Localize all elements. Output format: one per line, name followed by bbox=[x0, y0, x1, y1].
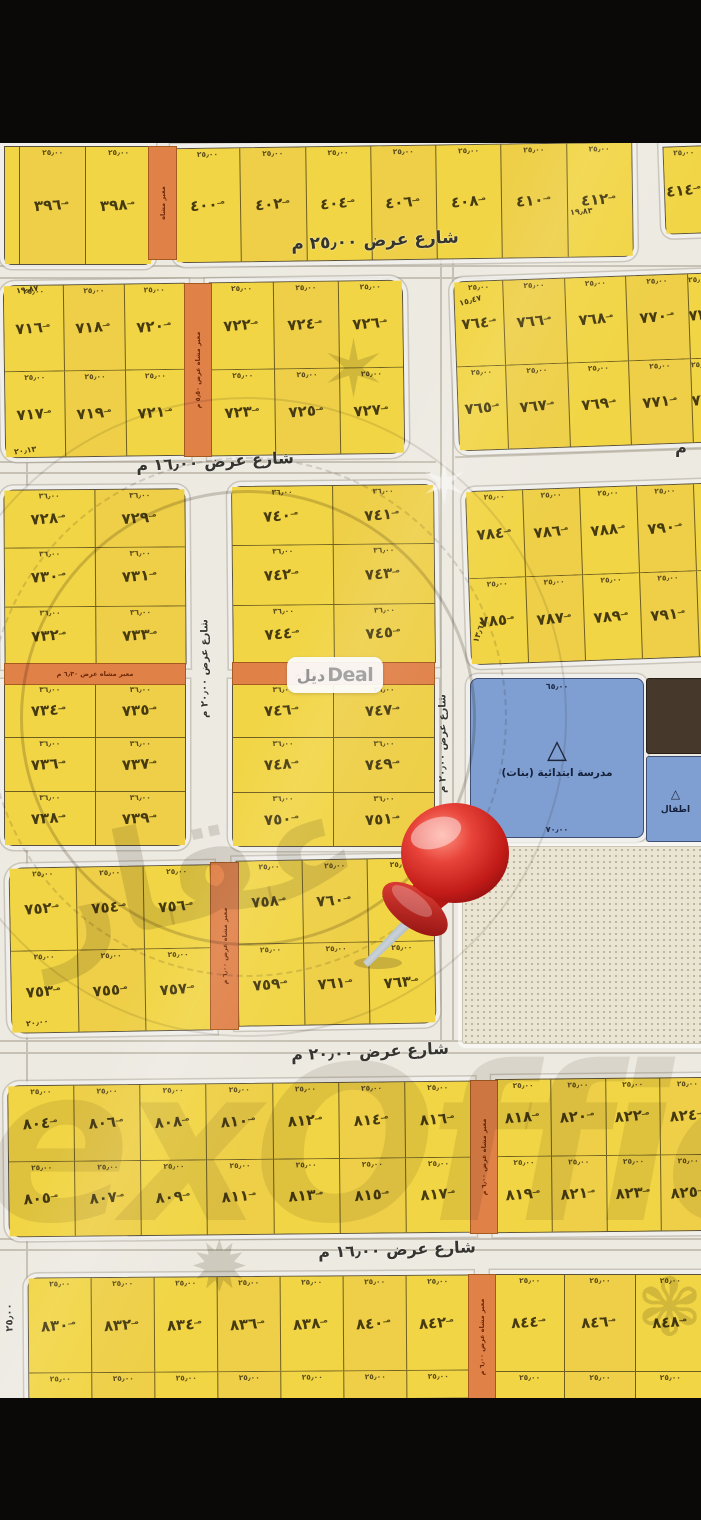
plot-820: ٢٥٫٠٠٨٢٠ bbox=[550, 1079, 606, 1155]
plot-dimension: ٢٥٫٠٠ bbox=[688, 275, 701, 285]
plot-number: ٧٥٤ bbox=[91, 899, 129, 917]
plot-dimension: ٢٥٫٠٠ bbox=[660, 1079, 701, 1089]
plot-row: ٣٦٫٠٠٧٤٤٣٦٫٠٠٧٤٥ bbox=[233, 603, 435, 664]
plot-725: ٢٥٫٠٠٧٢٥ bbox=[274, 368, 340, 454]
plot-block-t1: ٢٥٫٠٠٣٩٦٢٥٫٠٠٣٩٨ bbox=[4, 146, 152, 265]
plot-dimension: ٢٥٫٠٠ bbox=[552, 1157, 606, 1167]
plot-number: ٨٢٣ bbox=[615, 1184, 653, 1202]
plot-row: ٢٥٫٠٠٣٩٦٢٥٫٠٠٣٩٨ bbox=[5, 147, 151, 264]
plot-dimension: ٢٥٫٠٠ bbox=[583, 574, 639, 585]
app-logo-latin: Deal bbox=[327, 664, 373, 686]
plot-block-er: ٢٥٫٠٠٨١٨٢٥٫٠٠٨٢٠٢٥٫٠٠٨٢٢٢٥٫٠٠٨٢٤٢٥٫٠٠٨١٩… bbox=[495, 1077, 701, 1233]
plot-dimension: ٢٥٫٠٠ bbox=[5, 372, 64, 382]
plot-821: ٢٥٫٠٠٨٢١ bbox=[551, 1156, 607, 1232]
plot-partial: ٢٥٫٠٠ bbox=[217, 1372, 280, 1399]
plot-400: ٢٥٫٠٠٤٠٠ bbox=[175, 148, 241, 262]
plot-738: ٣٦٫٠٠٧٣٨ bbox=[5, 792, 95, 845]
passage-label: معبر مشاه عرض ٥٫٥٠ م bbox=[194, 332, 202, 409]
plot-dimension: ٢٥٫٠٠ bbox=[275, 369, 338, 379]
plot-733: ٣٦٫٠٠٧٣٣ bbox=[95, 606, 186, 664]
plot-number: ٨١٣ bbox=[287, 1187, 325, 1205]
plot-dimension: ٢٥٫٠٠ bbox=[664, 147, 701, 157]
passage-label: معبر مشاه عرض ٦٫٣٠ م bbox=[57, 670, 134, 678]
plot-number: ٧٣٣ bbox=[122, 626, 160, 644]
plot-dimension: ٢٥٫٠٠ bbox=[457, 366, 506, 377]
plot-block-b2: ٢٥٫٠٠٧٦٤٢٥٫٠٠٧٦٦٢٥٫٠٠٧٦٨٢٥٫٠٠٧٧٠٢٥٫٠٠٧٧٢… bbox=[453, 273, 701, 452]
plot-number: ٤٠٨ bbox=[450, 193, 488, 211]
plot-number: ٧٤٣ bbox=[365, 565, 403, 583]
plot-row: ٣٦٫٠٠٧٢٨٣٦٫٠٠٧٢٩ bbox=[4, 489, 184, 548]
plot-number: ٨٢٢ bbox=[614, 1107, 652, 1125]
plot-dimension: ٢٥٫٠٠ bbox=[64, 286, 123, 296]
plot-number: ٨٤٠ bbox=[356, 1314, 394, 1332]
plot-766: ٢٥٫٠٠٧٦٦ bbox=[503, 279, 567, 365]
plot-dimension: ٣٦٫٠٠ bbox=[334, 605, 434, 615]
plot-number: ٧٧٢ bbox=[687, 306, 701, 325]
plot-dimension: ٢٥٫٠٠ bbox=[607, 1156, 661, 1166]
plot-dimension: ٣٦٫٠٠ bbox=[5, 739, 95, 748]
plot-block-fl: ٢٥٫٠٠٨٣٠٢٥٫٠٠٨٣٢٢٥٫٠٠٨٣٤٢٥٫٠٠٨٣٦٢٥٫٠٠٨٣٨… bbox=[28, 1274, 471, 1401]
plot-number: ٧٦٥ bbox=[463, 398, 502, 417]
plot-825: ٢٥٫٠٠٨٢٥ bbox=[660, 1154, 701, 1230]
plot-number: ٧١٨ bbox=[75, 318, 113, 336]
plot-dimension: ٢٥٫٠٠ bbox=[580, 487, 636, 498]
app-logo-watermark: ديلDeal bbox=[287, 657, 383, 693]
plot-row: ٢٥٫٠٠٨١٨٢٥٫٠٠٨٢٠٢٥٫٠٠٨٢٢٢٥٫٠٠٨٢٤ bbox=[496, 1078, 701, 1156]
plot-810: ٢٥٫٠٠٨١٠ bbox=[206, 1084, 273, 1159]
plot-730: ٣٦٫٠٠٧٣٠ bbox=[5, 548, 95, 606]
plot-row: ٢٥٫٠٠٨٤٤٢٥٫٠٠٨٤٦٢٥٫٠٠٨٤٨ bbox=[495, 1275, 701, 1371]
plot-dimension: ٣٦٫٠٠ bbox=[334, 545, 434, 555]
plot-row: ٣٦٫٠٠٧٣٦٣٦٫٠٠٧٣٧ bbox=[5, 737, 185, 791]
plot-row: ٢٥٫٠٠٨٠٤٢٥٫٠٠٨٠٦٢٥٫٠٠٨٠٨٢٥٫٠٠٨١٠٢٥٫٠٠٨١٢… bbox=[8, 1082, 471, 1161]
plot-number: ٣٩٦ bbox=[34, 197, 72, 215]
plot-dimension: ٢٥٫٠٠ bbox=[75, 1162, 140, 1172]
plot-number: ٤٠٢ bbox=[254, 195, 292, 213]
plot-number: ٧٣٨ bbox=[31, 810, 69, 828]
plot-844: ٢٥٫٠٠٨٤٤ bbox=[495, 1275, 564, 1371]
plot-789: ٢٥٫٠٠٧٨٩ bbox=[582, 573, 642, 660]
plot-number: ٧٢٩ bbox=[121, 509, 159, 527]
plot-dimension: ٢٥٫٠٠ bbox=[606, 1079, 660, 1089]
school-dim-top: ٦٥٫٠٠ bbox=[471, 682, 643, 691]
pedestrian-passage: معبر مشاه bbox=[148, 146, 177, 260]
plot-dimension: ٢٥٫٠٠ bbox=[626, 275, 687, 286]
plot-756: ٢٥٫٠٠٧٥٦ bbox=[143, 865, 211, 948]
plot-dimension: ٢٥٫٠٠ bbox=[338, 282, 401, 292]
plot-dimension: ٢٥٫٠٠ bbox=[636, 1276, 701, 1285]
plot-396: ٢٥٫٠٠٣٩٦ bbox=[19, 147, 85, 264]
plot-dimension: ٢٥٫٠٠ bbox=[155, 1278, 217, 1287]
plot-dimension: ٣٦٫٠٠ bbox=[96, 607, 186, 617]
plot-number: ٧٦٠ bbox=[316, 892, 354, 910]
street-curb-line bbox=[0, 1238, 701, 1240]
plot-number: ٧٨٩ bbox=[593, 607, 632, 626]
plot-768: ٢٥٫٠٠٧٦٨ bbox=[564, 276, 628, 362]
plot-767: ٢٥٫٠٠٧٦٧ bbox=[505, 363, 569, 449]
plot-number: ٧٤٠ bbox=[263, 507, 301, 525]
plot-number: ٨٢١ bbox=[560, 1185, 598, 1203]
plot-dimension: ٢٥٫٠٠ bbox=[565, 277, 626, 288]
plot-dimension: ٢٥٫٠٠ bbox=[20, 148, 85, 157]
plot-dimension: ٢٥٫٠٠ bbox=[344, 1277, 406, 1286]
street-label-sv2: شارع عرض ٢٠٫٠٠ م bbox=[438, 669, 449, 819]
plot-number: ٧٣٩ bbox=[121, 810, 159, 828]
plot-dimension: ٢٥٫٠٠ bbox=[86, 148, 151, 157]
app-logo-arabic: ديل bbox=[297, 666, 326, 685]
plot-number: ٨٠٥ bbox=[23, 1190, 61, 1208]
plot-dimension: ٢٥٫٠٠ bbox=[526, 576, 582, 587]
plot-735: ٣٦٫٠٠٧٣٥ bbox=[95, 684, 186, 737]
plot-number: ٧٣٤ bbox=[31, 702, 69, 720]
passage-label: معبر مشاه bbox=[159, 186, 167, 220]
plot-number: ٧٧٣ bbox=[690, 391, 701, 410]
plot-block-b1b: ٢٥٫٠٠٧٢٢٢٥٫٠٠٧٢٤٢٥٫٠٠٧٢٦٢٥٫٠٠٧٢٣٢٥٫٠٠٧٢٥… bbox=[209, 280, 405, 457]
bottom-letterbox bbox=[0, 1398, 701, 1520]
plot-number: ٧٣٦ bbox=[31, 756, 69, 774]
plot-dimension: ٢٥٫٠٠ bbox=[495, 1276, 564, 1285]
plot-number: ٧٤٦ bbox=[264, 702, 302, 720]
plot-number: ٨٣٤ bbox=[167, 1316, 205, 1334]
plot-dimension: ٣٦٫٠٠ bbox=[233, 739, 333, 748]
plot-dimension: ٣٦٫٠٠ bbox=[334, 739, 434, 748]
plot-row: ٢٥٫٠٠٨٣٠٢٥٫٠٠٨٣٢٢٥٫٠٠٨٣٤٢٥٫٠٠٨٣٦٢٥٫٠٠٨٣٨… bbox=[29, 1275, 470, 1372]
plot-dimension: ٢٥٫٠٠ bbox=[29, 1279, 91, 1288]
plot-row: ٣٦٫٠٠٧٣٠٣٦٫٠٠٧٣١ bbox=[5, 547, 185, 607]
top-letterbox bbox=[0, 0, 701, 143]
plot-812: ٢٥٫٠٠٨١٢ bbox=[272, 1083, 339, 1158]
plot-dimension: ٢٥٫٠٠ bbox=[273, 1084, 338, 1094]
plot-number: ٧٤٧ bbox=[365, 702, 403, 720]
plot-822: ٢٥٫٠٠٨٢٢ bbox=[605, 1078, 661, 1154]
plot-row: ٣٦٫٠٠٧٤٢٣٦٫٠٠٧٤٣ bbox=[233, 543, 435, 604]
dark-plot bbox=[646, 678, 701, 754]
plot-838: ٢٥٫٠٠٨٣٨ bbox=[280, 1276, 344, 1371]
plot-736: ٣٦٫٠٠٧٣٦ bbox=[5, 738, 95, 791]
plot-772: ٢٥٫٠٠٧٧٢ bbox=[687, 274, 701, 358]
plot-dimension: ٢٥٫٠٠ bbox=[502, 145, 566, 155]
plot-row: ٣٦٫٠٠٧٣٨٣٦٫٠٠٧٣٩ bbox=[5, 791, 185, 845]
plot-dimension: ٣٦٫٠٠ bbox=[5, 549, 95, 559]
plot-number: ٧٨٤ bbox=[476, 525, 515, 544]
plot-dimension: ٢٥٫٠٠ bbox=[454, 282, 503, 293]
plot-dimension: ٢٥٫٠٠ bbox=[340, 368, 403, 378]
plot-block-t3: ٢٥٫٠٠٤١٤ bbox=[662, 145, 701, 234]
plot-number: ٨٠٨ bbox=[154, 1113, 192, 1131]
street-label-sv1: شارع عرض ٢٠٫٠٠ م bbox=[200, 594, 211, 744]
plot-dimension: ٢٥٫٠٠ bbox=[497, 1157, 551, 1167]
plot-number: ٧١٩ bbox=[76, 404, 114, 422]
location-pin bbox=[352, 797, 517, 972]
plot-number: ٨٠٦ bbox=[88, 1114, 126, 1132]
plot-block-d1: ٢٥٫٠٠٧٥٢٢٥٫٠٠٧٥٤٢٥٫٠٠٧٥٦٢٥٫٠٠٧٥٣٢٥٫٠٠٧٥٥… bbox=[9, 864, 214, 1034]
plot-dimension: ٢٥٫٠٠ bbox=[78, 950, 144, 960]
plot-dimension: ٣٦٫٠٠ bbox=[96, 793, 186, 802]
plot-dimension: ٢٥٫٠٠ bbox=[340, 1159, 405, 1169]
plot-dimension: ٢٥٫٠٠ bbox=[640, 572, 696, 583]
plot-dimension: ٣٦٫٠٠ bbox=[4, 491, 94, 501]
plot-dimension: ٢٥٫٠٠ bbox=[145, 949, 211, 959]
plot-dimension: ٢٥٫٠٠ bbox=[568, 362, 629, 373]
plot-dimension: ٢٥٫٠٠ bbox=[496, 1081, 550, 1091]
plot-dimension: ٢٥٫٠٠ bbox=[74, 1086, 139, 1096]
plot-number: ٧٤٩ bbox=[365, 756, 403, 774]
plot-dimension: ٢٥٫٠٠ bbox=[238, 944, 303, 954]
plot-716: ٢٥٫٠٠٧١٦ bbox=[4, 285, 65, 371]
plot-dimension: ٢٥٫٠٠ bbox=[371, 147, 435, 157]
plot-dimension: ٢٥٫٠٠ bbox=[11, 951, 77, 961]
plot-dimension: ٣٦٫٠٠ bbox=[233, 546, 333, 556]
plot-partial: ٢٥٫٠٠ bbox=[343, 1371, 406, 1398]
plot-block-el: ٢٥٫٠٠٨٠٤٢٥٫٠٠٨٠٦٢٥٫٠٠٨٠٨٢٥٫٠٠٨١٠٢٥٫٠٠٨١٢… bbox=[7, 1081, 473, 1238]
plot-row: ٢٥٫٠٠٧١٦٢٥٫٠٠٧١٨٢٥٫٠٠٧٢٠ bbox=[4, 284, 185, 372]
plot-number: ٧٨٨ bbox=[590, 521, 629, 540]
plot-818: ٢٥٫٠٠٨١٨ bbox=[496, 1080, 551, 1156]
plot-731: ٣٦٫٠٠٧٣١ bbox=[94, 548, 185, 606]
plot-814: ٢٥٫٠٠٨١٤ bbox=[338, 1082, 405, 1157]
plot-754: ٢٥٫٠٠٧٥٤ bbox=[76, 866, 144, 949]
plot-number: ٧٢٢ bbox=[223, 317, 261, 335]
plot-815: ٢٥٫٠٠٨١٥ bbox=[339, 1158, 406, 1233]
plot-752: ٢٥٫٠٠٧٥٢ bbox=[10, 868, 77, 951]
plot-number: ٧٦٧ bbox=[519, 396, 558, 415]
plot-number: ٧٣٥ bbox=[121, 702, 159, 720]
plot-number: ٨٤٤ bbox=[511, 1314, 549, 1332]
plot-number: ٧٨٧ bbox=[536, 609, 575, 628]
plot-block-c1a: ٣٦٫٠٠٧٢٨٣٦٫٠٠٧٢٩٣٦٫٠٠٧٣٠٣٦٫٠٠٧٣١٣٦٫٠٠٧٣٢… bbox=[3, 488, 186, 665]
plot-790: ٢٥٫٠٠٧٩٠ bbox=[636, 484, 696, 571]
plot-771: ٢٥٫٠٠٧٧١ bbox=[628, 359, 692, 445]
plot-number: ٧٦٨ bbox=[577, 310, 616, 329]
plot-813: ٢٥٫٠٠٨١٣ bbox=[273, 1158, 340, 1233]
plot-number: ٧٥٩ bbox=[252, 975, 290, 993]
plot-block-c1b: ٣٦٫٠٠٧٣٤٣٦٫٠٠٧٣٥٣٦٫٠٠٧٣٦٣٦٫٠٠٧٣٧٣٦٫٠٠٧٣٨… bbox=[4, 683, 186, 846]
plot-number: ٧٤٤ bbox=[265, 625, 303, 643]
plot-number: ٤١٤ bbox=[666, 181, 701, 200]
plot-row: ٢٥٫٠٠٧٢٣٢٥٫٠٠٧٢٥٢٥٫٠٠٧٢٧ bbox=[211, 366, 404, 455]
plot-block-fr: ٢٥٫٠٠٨٤٤٢٥٫٠٠٨٤٦٢٥٫٠٠٨٤٨٢٥٫٠٠٢٥٫٠٠٢٥٫٠٠ bbox=[494, 1274, 701, 1400]
plot-824: ٢٥٫٠٠٨٢٤ bbox=[659, 1078, 701, 1154]
kindergarten-plot: اطفال bbox=[646, 756, 701, 842]
plot-number: ٨٣٠ bbox=[41, 1317, 79, 1335]
plot-dimension: ٢٥٫٠٠ bbox=[691, 359, 701, 369]
plot-dimension: ٢٥٫٠٠ bbox=[281, 1277, 343, 1286]
plot-dimension: ٣٦٫٠٠ bbox=[95, 490, 185, 500]
plot-number: ٨٤٨ bbox=[651, 1314, 689, 1332]
plot-727: ٢٥٫٠٠٧٢٧ bbox=[339, 367, 405, 453]
plot-808: ٢٥٫٠٠٨٠٨ bbox=[140, 1084, 207, 1159]
pedestrian-passage: معبر مشاه عرض ٦٫٠٠ م bbox=[470, 1080, 498, 1234]
plot-742: ٣٦٫٠٠٧٤٢ bbox=[233, 545, 334, 604]
plot-number: ٧٢٠ bbox=[136, 318, 174, 336]
plot-number: ٨٣٨ bbox=[293, 1315, 331, 1333]
plot-817: ٢٥٫٠٠٨١٧ bbox=[405, 1157, 472, 1232]
pedestrian-passage: معبر مشاه عرض ٥٫٥٠ م bbox=[184, 283, 212, 457]
plot-dimension: ٢٥٫٠٠ bbox=[506, 364, 567, 375]
plot-741: ٣٦٫٠٠٧٤١ bbox=[332, 485, 434, 544]
plot-726: ٢٥٫٠٠٧٢٦ bbox=[337, 281, 403, 367]
plot-number: ٨١٧ bbox=[420, 1186, 458, 1204]
plot-749: ٣٦٫٠٠٧٤٩ bbox=[333, 738, 434, 791]
plot-number: ٧٥٧ bbox=[160, 980, 198, 998]
plot-740: ٣٦٫٠٠٧٤٠ bbox=[232, 486, 333, 545]
pedestrian-passage: معبر مشاه عرض ٦٫٠٠ م bbox=[468, 1274, 496, 1400]
plot-dimension: ٢٥٫٠٠ bbox=[565, 1276, 634, 1285]
plot-row: ٢٥٫٠٠٢٥٫٠٠٢٥٫٠٠٢٥٫٠٠٢٥٫٠٠٢٥٫٠٠٢٥٫٠٠ bbox=[29, 1370, 469, 1401]
plot-834: ٢٥٫٠٠٨٣٤ bbox=[154, 1277, 218, 1372]
plot-729: ٣٦٫٠٠٧٢٩ bbox=[94, 489, 185, 547]
plot-dimension: ٢٥٫٠٠ bbox=[175, 149, 239, 159]
plot-row: ٢٥٫٠٠٧٦٥٢٥٫٠٠٧٦٧٢٥٫٠٠٧٦٩٢٥٫٠٠٧٧١٢٥٫٠٠٧٧٣ bbox=[457, 357, 701, 450]
school-label: مدرسة ابتدائية (بنات) bbox=[501, 767, 612, 779]
plot-number: ٧٥٥ bbox=[93, 981, 131, 999]
plot-number: ٧٣٧ bbox=[121, 756, 159, 774]
plot-partial: ٢٥٫٠٠ bbox=[280, 1372, 343, 1399]
plot-743: ٣٦٫٠٠٧٤٣ bbox=[333, 544, 435, 603]
plot-dimension: ٢٥٫٠٠ bbox=[141, 1161, 206, 1171]
street-label-sleft: ٢٥٫٠٠ bbox=[5, 1270, 16, 1366]
plot-728: ٣٦٫٠٠٧٢٨ bbox=[4, 490, 94, 548]
plot-dimension: ٢٥٫٠٠ bbox=[211, 370, 274, 380]
plot-846: ٢٥٫٠٠٨٤٦ bbox=[564, 1275, 634, 1371]
plot-dimension: ٢٥٫٠٠ bbox=[466, 491, 522, 502]
plot-dimension: ٣٦٫٠٠ bbox=[95, 549, 185, 559]
plot-number: ٧٣٢ bbox=[31, 627, 69, 645]
plot-number: ٧٥٦ bbox=[158, 897, 196, 915]
plot-724: ٢٥٫٠٠٧٢٤ bbox=[273, 282, 339, 368]
plot-partial: ٢٥٫٠٠ bbox=[406, 1371, 469, 1398]
plot-dimension: ٣٦٫٠٠ bbox=[233, 606, 333, 616]
plot-819: ٢٥٫٠٠٨١٩ bbox=[497, 1156, 552, 1232]
plot-412: ٢٥٫٠٠٤١٢ bbox=[566, 143, 633, 257]
plot-number: ٨١٩ bbox=[505, 1185, 543, 1203]
plot-dimension: ٢٥٫٠٠ bbox=[661, 1155, 701, 1165]
plot-732: ٣٦٫٠٠٧٣٢ bbox=[5, 607, 95, 665]
plot-770: ٢٥٫٠٠٧٧٠ bbox=[625, 274, 689, 360]
plot-dimension: ٢٥٫٠٠ bbox=[77, 867, 143, 877]
plot-848: ٢٥٫٠٠٨٤٨ bbox=[635, 1275, 701, 1371]
plot-number: ٣٩٨ bbox=[99, 197, 137, 215]
plot-dimension: ٣٦٫٠٠ bbox=[333, 486, 433, 496]
plot-number: ٧٤٨ bbox=[264, 756, 302, 774]
plot-partial: ٢٥٫٠٠ bbox=[495, 1372, 564, 1399]
plot-number: ٧١٦ bbox=[15, 319, 53, 337]
plot-number: ٧١٧ bbox=[16, 405, 54, 423]
plot-block-b1: ٢٥٫٠٠٧١٦٢٥٫٠٠٧١٨٢٥٫٠٠٧٢٠٢٥٫٠٠٧١٧٢٥٫٠٠٧١٩… bbox=[3, 283, 187, 459]
plot-832: ٢٥٫٠٠٨٣٢ bbox=[91, 1278, 155, 1373]
plot-786: ٢٥٫٠٠٧٨٦ bbox=[522, 488, 582, 575]
plot-number: ٤٠٦ bbox=[385, 193, 423, 211]
street-curb-line bbox=[0, 472, 430, 474]
plot-755: ٢٥٫٠٠٧٥٥ bbox=[77, 949, 145, 1032]
plot-block-c4: ٢٥٫٠٠٧٨٤٢٥٫٠٠٧٨٦٢٥٫٠٠٧٨٨٢٥٫٠٠٧٩٠٢٥٫٠٠٧٨٥… bbox=[465, 483, 701, 665]
plot-partial: ٢٥٫٠٠ bbox=[29, 1373, 91, 1400]
plot-number: ٧٥٣ bbox=[26, 982, 64, 1000]
plot-partial: ٢٥٫٠٠ bbox=[564, 1372, 634, 1399]
pedestrian-passage: معبر مشاه عرض ٦٫٣٠ م bbox=[4, 663, 186, 685]
plot-773: ٢٥٫٠٠٧٧٣ bbox=[690, 358, 701, 442]
plot-number: ٧٨٦ bbox=[533, 523, 572, 542]
plot-number: ٧٦٣ bbox=[383, 973, 421, 991]
plot-number: ٨٢٠ bbox=[559, 1108, 597, 1126]
plot-791: ٢٥٫٠٠٧٩١ bbox=[639, 571, 699, 658]
plot-number: ٨٠٩ bbox=[155, 1188, 193, 1206]
plot-row: ٢٥٫٠٠٨٠٥٢٥٫٠٠٨٠٧٢٥٫٠٠٨٠٩٢٥٫٠٠٨١١٢٥٫٠٠٨١٣… bbox=[9, 1156, 472, 1236]
plot-number: ٧٣٠ bbox=[31, 568, 69, 586]
plot-dimension: ٢٥٫٠٠ bbox=[551, 1080, 605, 1090]
plot-787: ٢٥٫٠٠٧٨٧ bbox=[525, 575, 585, 662]
plot-dimension: ٢٥٫٠٠ bbox=[124, 285, 183, 295]
plot-number: ٧٩١ bbox=[650, 605, 689, 624]
plot-dimension: ٣٦٫٠٠ bbox=[96, 739, 186, 748]
plot-row: ٢٥٫٠٠٨١٩٢٥٫٠٠٨٢١٢٥٫٠٠٨٢٣٢٥٫٠٠٨٢٥ bbox=[497, 1153, 701, 1232]
plot-dimension: ٣٦٫٠٠ bbox=[5, 685, 95, 694]
plot-dimension: ٢٥٫٠٠ bbox=[523, 489, 579, 500]
plot-dimension: ٢٥٫٠٠ bbox=[8, 1087, 73, 1097]
plot-759: ٢٥٫٠٠٧٥٩ bbox=[238, 943, 304, 1026]
plot-830: ٢٥٫٠٠٨٣٠ bbox=[29, 1278, 92, 1373]
plot-dimension: ٣٦٫٠٠ bbox=[5, 793, 95, 802]
plot-718: ٢٥٫٠٠٧١٨ bbox=[63, 285, 125, 371]
plot-dimension: ٢٥٫٠٠ bbox=[274, 1159, 339, 1169]
plot-842: ٢٥٫٠٠٨٤٢ bbox=[406, 1275, 470, 1370]
plot-row: ٢٥٫٠٠٧٨٥٢٥٫٠٠٧٨٧٢٥٫٠٠٧٨٩٢٥٫٠٠٧٩١ bbox=[469, 569, 701, 664]
plot-row: ٢٥٫٠٠٢٥٫٠٠٢٥٫٠٠ bbox=[495, 1371, 701, 1399]
plot-number: ٧٦٦ bbox=[516, 312, 555, 331]
plot-number: ٧٦٩ bbox=[580, 394, 619, 413]
plot-398: ٢٥٫٠٠٣٩٨ bbox=[85, 147, 151, 264]
plot-836: ٢٥٫٠٠٨٣٦ bbox=[217, 1277, 281, 1372]
plot-816: ٢٥٫٠٠٨١٦ bbox=[404, 1082, 471, 1157]
plot-765: ٢٥٫٠٠٧٦٥ bbox=[457, 365, 508, 450]
plot-number: ٧٢٧ bbox=[353, 401, 391, 419]
plot-number: ٧٩٠ bbox=[647, 519, 686, 538]
plot-dimension: ٢٥٫٠٠ bbox=[567, 144, 631, 154]
passage-label: معبر مشاه عرض ٦٫٠٠ م bbox=[221, 908, 229, 985]
plot-number: ٧٥٢ bbox=[24, 900, 62, 918]
plot-809: ٢٥٫٠٠٨٠٩ bbox=[140, 1160, 207, 1235]
plot-number: ٧٤١ bbox=[364, 506, 402, 524]
plot-dimension: ٢٥٫٠٠ bbox=[126, 371, 185, 381]
plot-dimension: ٢٥٫٠٠ bbox=[10, 869, 76, 879]
plot-number: ٨١٦ bbox=[419, 1110, 457, 1128]
plot-number: ٤٠٤ bbox=[320, 194, 358, 212]
plot-dimension: ٢٥٫٠٠ bbox=[9, 1162, 74, 1172]
street-label-s2r: م bbox=[668, 438, 694, 457]
plot-dimension: ٢٥٫٠٠ bbox=[241, 148, 305, 158]
plot-784: ٢٥٫٠٠٧٨٤ bbox=[466, 490, 525, 577]
plot-414: ٢٥٫٠٠٤١٤ bbox=[664, 146, 701, 233]
plot-dimension: ٢٥٫٠٠ bbox=[144, 866, 210, 876]
plot-745: ٣٦٫٠٠٧٤٥ bbox=[333, 604, 435, 663]
plot-748: ٣٦٫٠٠٧٤٨ bbox=[233, 738, 333, 791]
plot-number: ٨٣٢ bbox=[104, 1316, 142, 1334]
plot-number: ٧٢٥ bbox=[288, 402, 326, 420]
plot-dimension: ٢٥٫٠٠ bbox=[405, 1083, 470, 1093]
plot-dimension: ٣٦٫٠٠ bbox=[232, 487, 332, 497]
plot-row: ٣٦٫٠٠٧٣٤٣٦٫٠٠٧٣٥ bbox=[5, 684, 185, 737]
plot-row: ٢٥٫٠٠٧٨٤٢٥٫٠٠٧٨٦٢٥٫٠٠٧٨٨٢٥٫٠٠٧٩٠ bbox=[466, 484, 701, 578]
plot-row: ٢٥٫٠٠٤١٤ bbox=[664, 146, 701, 233]
plot-757: ٢٥٫٠٠٧٥٧ bbox=[144, 948, 212, 1031]
plot-number: ٧٤٢ bbox=[264, 566, 302, 584]
plot-734: ٣٦٫٠٠٧٣٤ bbox=[5, 684, 95, 737]
plot-number: ٨٠٧ bbox=[89, 1189, 127, 1207]
plot-number: ٤٠٠ bbox=[189, 196, 227, 214]
plot-number bbox=[11, 198, 14, 213]
plot-dimension: ٢٥٫٠٠ bbox=[469, 578, 525, 589]
plot-row: ٣٦٫٠٠٧٤٨٣٦٫٠٠٧٤٩ bbox=[233, 737, 434, 791]
